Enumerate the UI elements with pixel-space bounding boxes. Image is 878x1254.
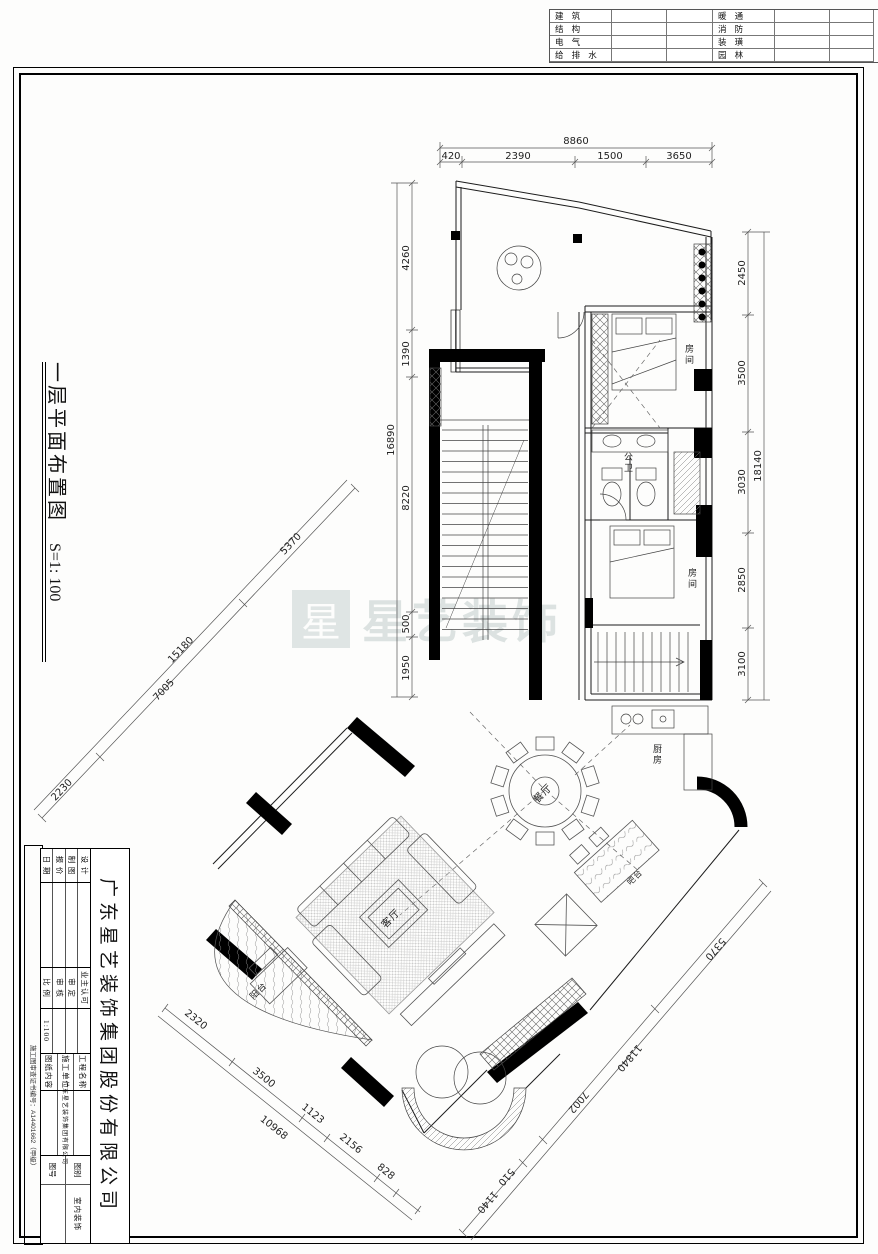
field-value-empty [78, 883, 91, 967]
room-label-kitchen: 厨房 [651, 744, 664, 766]
dim-dleft-s3: 5370 [278, 531, 303, 557]
dim-left-s1: 4260 [401, 245, 412, 270]
field-values-b: 1:100 [41, 1009, 90, 1054]
field-label: 业主认可 [78, 968, 91, 1008]
field-value-empty [65, 1009, 78, 1053]
field-label: 设 计 [78, 849, 91, 882]
field-label: 报 价 [53, 849, 66, 882]
dim-top-s4: 3650 [666, 151, 691, 162]
field-values-c: 广东星艺装饰集团有限公司 [41, 1091, 90, 1156]
field-labels-b: 业主认可 审 定 审 核 比 例 [41, 968, 90, 1009]
company-name: 广东星艺装饰集团股份有限公司 [97, 878, 124, 1214]
field-label: 图纸内容 [41, 1054, 57, 1090]
review-cert-number: 施工图审查证书编号：A14401662（甲级） [29, 1045, 39, 1230]
fixtures [215, 244, 712, 1150]
dimension-labels: 8860 420 2390 1500 3650 16890 4260 1390 … [49, 136, 764, 1215]
dim-left-s3: 8220 [401, 485, 412, 510]
sheet-type-value: 室内装饰 [66, 1185, 90, 1243]
dim-dleft-overall: 15180 [166, 635, 196, 666]
field-labels-a: 设 计 制 图 报 价 日 期 [41, 849, 90, 883]
dimension-lines [34, 142, 771, 1240]
dim-top-s1: 420 [441, 151, 460, 162]
dim-right-s4: 2850 [737, 567, 748, 592]
dim-dbot-s3: 1123 [299, 1102, 326, 1126]
sheet-type-label: 图别 [66, 1156, 90, 1185]
field-label: 审 核 [53, 968, 66, 1008]
field-label: 工程名称 [73, 1054, 90, 1090]
builder-name: 广东星艺装饰集团有限公司 [57, 1091, 74, 1155]
sheet-content-value [41, 1091, 57, 1155]
project-name-value [73, 1091, 90, 1155]
field-label: 比 例 [41, 968, 53, 1008]
dim-right-s3: 3030 [737, 469, 748, 494]
dim-left-s4: 500 [401, 614, 412, 633]
field-label: 审 定 [65, 968, 78, 1008]
dim-left-overall: 16890 [386, 424, 397, 456]
dim-top-s3: 1500 [597, 151, 622, 162]
field-label: 日 期 [41, 849, 53, 882]
dim-dbot-s4: 2156 [337, 1132, 364, 1156]
dim-left-s2: 1390 [401, 341, 412, 366]
field-value-empty [65, 883, 78, 967]
drawing-sheet: 建 筑 暖 通 结 构 消 防 电 气 装 璜 给 排 水 园 林 一层平面布置… [0, 0, 878, 1254]
sheet-no-value [41, 1185, 65, 1243]
bar-counter [564, 808, 659, 902]
dim-dright-s3: 510 [496, 1166, 517, 1188]
title-block-fields: 设 计 制 图 报 价 日 期 业主认可 审 定 审 核 比 例 [41, 849, 90, 1243]
dim-dright-overall: 11840 [614, 1042, 643, 1073]
floor-plan: 8860 420 2390 1500 3650 16890 4260 1390 … [0, 0, 878, 1254]
company-row: 广东星艺装饰集团股份有限公司 [90, 849, 129, 1243]
dim-top-overall: 8860 [563, 136, 588, 147]
room-label-bedroom1: 房间 [683, 344, 696, 366]
dim-right-overall: 18140 [753, 450, 764, 482]
dim-top-s2: 2390 [505, 151, 530, 162]
room-label-bath: 公卫 [622, 452, 635, 474]
field-value-empty [53, 883, 66, 967]
dim-dleft-s1: 2230 [49, 777, 74, 803]
field-value-empty [78, 1009, 91, 1053]
field-value-empty [53, 1009, 66, 1053]
dim-dbot-s5: 828 [375, 1162, 397, 1182]
sheet-no-label: 图号 [41, 1156, 65, 1185]
dim-right-s5: 3100 [737, 651, 748, 676]
field-value-empty [41, 883, 53, 967]
dim-right-s1: 2450 [737, 260, 748, 285]
dim-dbot-s1: 2320 [182, 1008, 209, 1032]
dim-dright-s2: 7002 [565, 1088, 590, 1114]
field-label: 制 图 [65, 849, 78, 882]
field-values-a [41, 883, 90, 968]
sheet-meta: 图别 室内装饰 图号 [41, 1156, 90, 1243]
dim-dleft-s2: 7005 [151, 677, 176, 703]
dim-left-s5: 1950 [401, 655, 412, 680]
dim-right-s2: 3500 [737, 360, 748, 385]
room-label-bedroom2: 房间 [686, 568, 699, 590]
title-block: 广东星艺装饰集团股份有限公司 设 计 制 图 报 价 日 期 业主认可 审 定 … [40, 848, 130, 1244]
scale-value: 1:100 [41, 1009, 53, 1053]
